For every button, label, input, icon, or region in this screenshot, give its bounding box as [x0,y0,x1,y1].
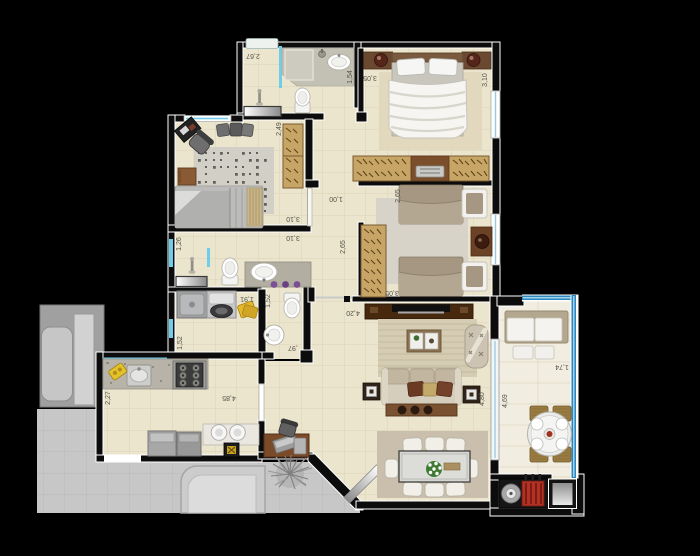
svg-text:2,49: 2,49 [276,122,283,136]
svg-text:2,65: 2,65 [395,189,402,203]
svg-text:1,91: 1,91 [240,295,254,302]
svg-text:4,69: 4,69 [502,394,509,408]
svg-text:4,20: 4,20 [346,309,360,316]
svg-text:2,65: 2,65 [340,240,347,254]
svg-text:2,27: 2,27 [105,391,112,405]
svg-text:1,26: 1,26 [176,237,183,251]
svg-text:3,10: 3,10 [482,73,489,87]
svg-text:3,05: 3,05 [385,289,399,296]
svg-text:3,05: 3,05 [363,74,377,81]
svg-text:1,74: 1,74 [555,363,569,370]
svg-text:3,10: 3,10 [286,234,300,241]
svg-text:1,54: 1,54 [347,70,354,84]
svg-text:3,10: 3,10 [286,215,300,222]
svg-text:4,80: 4,80 [479,392,486,406]
svg-text:1,52: 1,52 [265,294,272,308]
svg-text:,97: ,97 [288,344,298,351]
svg-text:4,85: 4,85 [222,394,236,401]
svg-text:1,00: 1,00 [329,195,343,202]
svg-text:1,52: 1,52 [177,336,184,350]
svg-text:2,67: 2,67 [246,52,260,59]
